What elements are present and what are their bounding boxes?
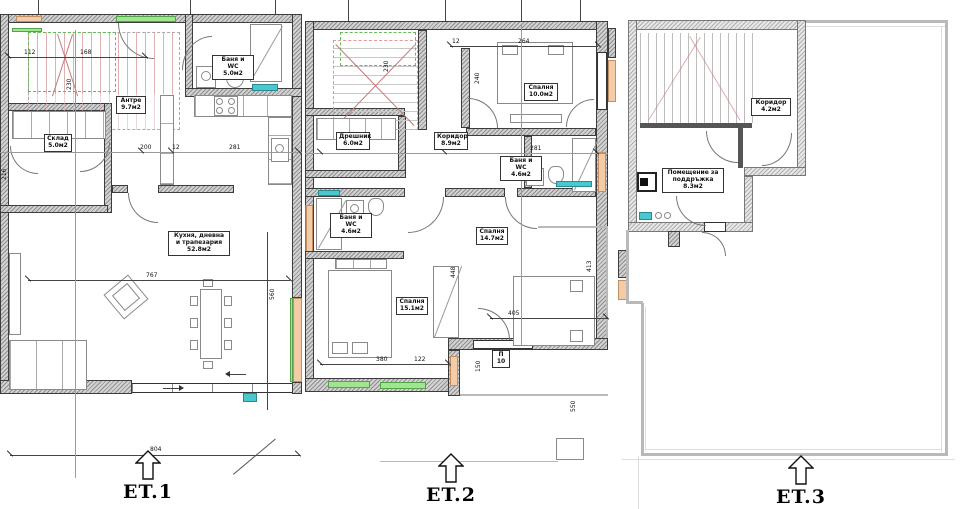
axis-line [521,25,522,345]
dimension-line [28,280,290,281]
wall [0,205,108,213]
wall-stub [668,231,680,247]
dim-label: 12 [452,38,460,45]
axis-line [0,152,302,153]
slide-arrow-icon [225,371,230,377]
extension-line [38,0,39,14]
sink [639,212,652,220]
glass-front [132,383,292,393]
dim-label: 264 [518,38,529,45]
wall [628,222,753,232]
floor-marker-et1: ET.1 [117,450,179,503]
tall-cabinet [160,95,174,185]
chair [224,340,232,350]
note-box-p10: П 10 [492,350,510,368]
dim-label: 550 [570,401,577,412]
room-label-living: Кухня, дневна и трапезария 52.8м2 [168,231,230,256]
room-name: Кухня, дневна и трапезария [171,233,227,247]
door-arc [468,98,498,128]
room-area: 9.7м2 [119,105,143,112]
burner [228,98,235,105]
door-arc [706,131,738,163]
dim-label: 448 [450,267,457,278]
wall [628,20,806,30]
room-area: 52.8м2 [171,247,227,254]
staircase [640,33,758,123]
dimension-line [267,232,268,410]
door-arc [408,197,444,233]
chair [203,361,213,369]
chair [224,318,232,328]
window-green [116,16,176,22]
wall [305,170,406,178]
room-label-corridor3: Коридор 4.2м2 [751,98,791,116]
room-label-bath2: Баня и WC 4.6м2 [330,213,372,238]
cupboard [9,253,21,335]
dim-label: 150 [475,361,482,372]
room-name: Помещение за поддръжка [665,170,721,184]
wall [112,185,128,193]
terrace-line [460,394,608,396]
window-salmon [450,356,458,386]
window-salmon [293,298,302,382]
dining-table [200,289,222,359]
terrace-outline-inner [645,307,646,451]
terrace-outline [626,230,629,303]
burner [228,107,235,114]
terrace-door [704,222,726,232]
window-salmon [306,205,313,255]
wall [312,21,598,30]
wall [418,30,427,130]
wall [305,251,404,259]
room-label-bath1: Баня и WC 4.6м2 [500,156,542,181]
wall [628,20,637,223]
terrace-outline-inner [806,26,945,27]
dim-label: 216 [1,169,8,180]
slide-arrow-line [163,388,179,389]
room-label-bedroom1: Спалня 10.0м2 [524,83,558,101]
dim-label: 200 [140,144,151,151]
dim-label: 281 [530,145,541,152]
room-area: 4.6м2 [333,229,369,236]
roof-edge-line [538,226,608,228]
door-arc [478,308,510,340]
pillow [570,330,583,342]
terrace-outline-inner [645,449,942,450]
door-arc [128,193,158,223]
room-label-bedroom2: Спалня 15.1м2 [396,297,428,315]
section-slash [233,439,276,475]
room-label-entry: Антре 9.7м2 [116,96,146,114]
window-salmon [608,60,616,102]
dimension-line [8,57,148,58]
chair [190,296,198,306]
chimney-flue [640,178,648,186]
up-arrow-icon [438,453,464,483]
wall [797,20,806,170]
dim-label: 767 [146,272,157,279]
terrace-outline [806,20,948,23]
room-area: 5.0м2 [47,143,69,150]
window-green [328,381,370,388]
dim-label: 413 [586,261,593,272]
floor-label: ET.2 [420,484,482,506]
dim-label: 405 [508,310,519,317]
burner [216,98,223,105]
floor-marker-et3: ET.3 [770,455,832,508]
dimension-line [490,318,608,319]
burner [216,107,223,114]
room-area: 15.1м2 [399,306,425,313]
room-area: 4.2м2 [754,107,788,114]
up-arrow-icon [788,455,814,485]
pillow [352,342,368,354]
window [597,52,607,110]
roof-edge-line [606,226,608,338]
dim-label: 560 [269,289,276,300]
dim-label: 168 [80,49,91,56]
floor-marker-et2: ET.2 [420,453,482,506]
room-area: 4.6м2 [503,172,539,179]
dim-label: 230 [383,61,390,72]
terrace-outline-inner [941,26,942,452]
wall [158,185,234,193]
fixture-circle [664,212,671,219]
room-label-maintenance: Помещение за поддръжка 8.3м2 [662,168,724,193]
dim-label: 122 [414,356,425,363]
room-area: 5.0м2 [215,71,251,78]
dimension-line [450,46,598,47]
dim-label: 380 [376,356,387,363]
window-green [380,382,426,389]
up-arrow-icon [135,450,161,480]
door-arc [10,146,38,174]
room-label-bedroom3: Спалня 14.7м2 [476,227,508,245]
dimension-line [320,364,448,365]
washer-drum [201,71,211,81]
note-text: П 10 [495,352,507,366]
floorplan-canvas: Баня и WC 5.0м2 Антре 9.7м2 Склад 5.0м2 … [0,0,961,509]
room-name: Баня и WC [503,158,539,172]
extension-line [275,0,276,14]
chair [190,318,198,328]
sink [556,181,592,187]
wall [445,188,505,197]
pillow [570,280,583,292]
pillow [332,342,348,354]
extension-line [580,0,581,21]
door-arc [762,133,792,166]
fixture-circle [655,212,662,219]
partition-wall [738,128,743,168]
room-area: 10.0м2 [527,92,555,99]
wall [608,28,616,58]
dim-label: 240 [474,73,481,84]
window-salmon [598,152,606,192]
chair [190,340,198,350]
dim-label: 230 [66,79,73,90]
room-area: 8.3м2 [665,184,721,191]
axis-line [305,153,608,154]
slide-arrow-line [230,374,246,375]
extension-line [445,0,446,21]
floor-label: ET.3 [770,486,832,508]
extension-line [190,0,191,14]
dim-label: 112 [24,49,35,56]
stair-landing-wall [640,123,752,128]
column [556,438,584,460]
room-name: Баня и WC [333,215,369,229]
room-label-bath: Баня и WC 5.0м2 [212,55,254,80]
sink [318,190,340,196]
dim-label: 12 [172,144,180,151]
room-label-storage: Склад 5.0м2 [44,134,72,152]
sink [252,84,278,91]
door-arc [702,232,726,256]
wall [305,21,314,381]
room-name: Баня и WC [215,57,251,71]
room-area: 8.9м2 [437,141,465,148]
terrace-outline [641,303,644,455]
wall [292,14,302,298]
washer-drum [350,204,359,213]
wall [292,382,302,394]
fixture [243,393,257,402]
floor-label: ET.1 [117,481,179,503]
kitchen-counter [194,95,292,117]
axis-line [75,30,76,478]
window-salmon [16,16,42,22]
room-label-corridor: Коридор 8.9м2 [434,132,468,150]
terrace-outline [945,20,948,456]
room-area: 14.7м2 [479,236,505,243]
extension-line [521,0,522,21]
wall [466,128,596,136]
chair [224,296,232,306]
bench [510,114,562,123]
room-area: 6.0м2 [339,141,367,148]
room-label-closet: Дрешник 6.0м2 [336,132,370,150]
dim-label: 281 [229,144,240,151]
terrace-outline-faint [638,456,639,509]
wall [744,167,806,176]
slide-arrow-icon [179,385,184,391]
extension-line [348,0,349,21]
wardrobe [335,259,387,269]
wall [0,14,9,386]
